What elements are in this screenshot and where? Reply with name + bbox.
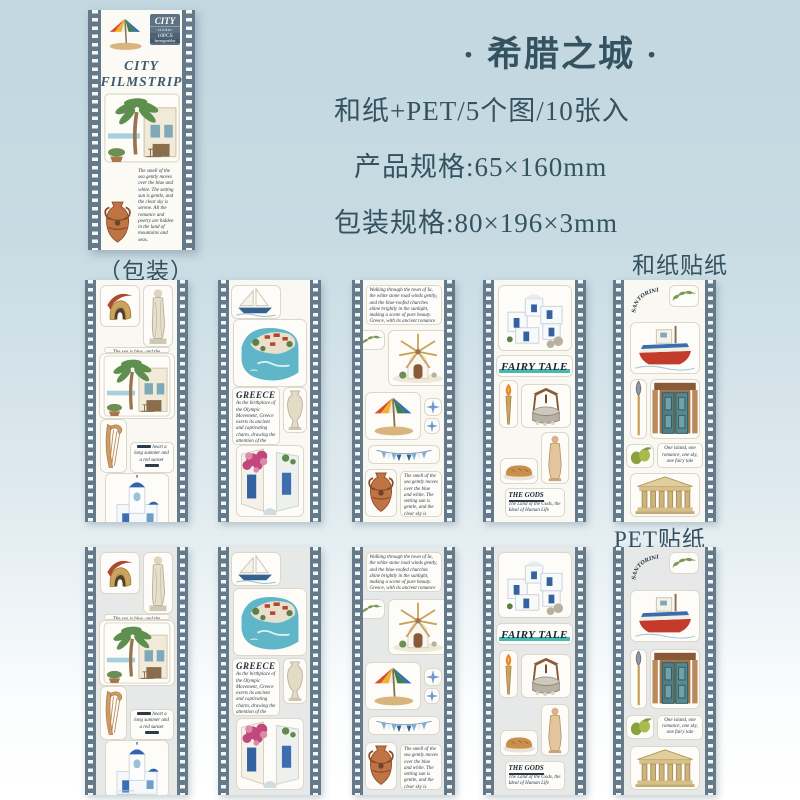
tag-title: CITY [150,16,180,27]
film-sprocket-edge [705,280,716,522]
film-sprocket-edge [705,547,716,795]
filmstrip-sticker-ancient: The sea is blue, and the dream is white.… [85,547,188,795]
side-note-sticker: heart a long summer and a red sunset [130,442,174,473]
parthenon-temple-sticker [630,473,700,517]
film-sprocket-edge [575,280,586,522]
filmstrip-sticker-santorini: SANTORINI One island, one romance, one s… [613,547,716,795]
marble-vase-sticker [283,658,307,704]
coastal-village-sticker [233,588,307,656]
santorini-arc-text: SANTORINI [630,285,666,317]
sailboat-sticker [231,285,281,319]
film-sprocket-edge [444,280,455,522]
svg-text:SANTORINI: SANTORINI [631,554,660,580]
filmstrip-sticker-greece: GREECE As the birthplace of the Olympic … [218,280,321,522]
coastal-village-sticker [233,319,307,387]
filmstrip-sticker-windmill: Walking through the town of Ia, the whit… [352,280,455,522]
amphora-vase-sticker [365,469,397,517]
old-wooden-door-sticker [650,379,700,439]
film-sprocket-edge [483,547,494,795]
film-sprocket-edge [444,547,455,795]
film-sprocket-edge [177,280,188,522]
film-sprocket-edge [85,280,96,522]
spec-product-size: 产品规格:65×160mm [330,145,792,184]
marble-vase-sticker [283,387,307,433]
greek-statue-sticker [143,285,173,347]
spear-sticker [630,379,647,439]
spartan-helmet-sticker [100,285,140,327]
ancient-well-sticker [521,654,571,698]
greece-text-sticker: GREECE As the birthplace of the Olympic … [232,387,280,445]
sailboat-sticker [231,552,281,586]
beach-umbrella-icon [103,14,147,54]
film-sprocket-edge [483,280,494,522]
blue-dome-church-sticker [105,473,169,522]
palm-house-scene-sticker [99,353,175,419]
package-photo: CITY ·sticker· 10PCS haveagoodday CITY F… [88,10,195,250]
amphora-vase-art [103,200,132,246]
side-note-sticker: heart a long summer and a red sunset [130,709,174,740]
olive-sprig-sticker [363,599,385,619]
filmstrip-sticker-greece: GREECE As the birthplace of the Olympic … [218,547,321,795]
filmstrip-sticker-santorini: SANTORINI One island, one romance, one s… [613,280,716,522]
greek-statue-sticker [143,552,173,614]
film-sprocket-edge [85,547,96,795]
white-village-sticker [498,552,572,618]
filmstrip-sticker-windmill: Walking through the town of Ia, the whit… [352,547,455,795]
package-tag: CITY ·sticker· 10PCS haveagoodday [150,14,180,45]
fairy-tale-title-sticker: FAIRY TALE [496,355,573,377]
bougainvillea-street-sticker [236,718,304,790]
paragraph-text-sticker: Walking through the town of Ia, the whit… [366,552,442,592]
santorini-arc-text: SANTORINI [630,552,666,584]
film-sprocket-edge [177,547,188,795]
parthenon-temple-sticker [630,746,700,790]
page-title: · 希腊之城 · [330,26,792,77]
amphora-vase-sticker [365,742,397,790]
windmill-sticker [388,599,444,655]
tag-brand: haveagoodday [150,39,180,43]
windmill-sticker [388,330,444,386]
olive-branch-sticker [669,285,699,307]
note-text-sticker: One island, one romance, one sky, one fa… [657,715,703,740]
sparkle-icon [424,668,442,686]
svg-text:SANTORINI: SANTORINI [631,287,660,313]
film-sprocket-edge [310,547,321,795]
olive-sprig-sticker [363,330,385,350]
spec-package-size: 包装规格:80×196×3mm [330,201,792,240]
torch-sticker [499,650,518,698]
palm-house-scene-art [103,93,181,163]
film-sprocket-edge [352,280,363,522]
old-wooden-door-sticker [650,649,700,709]
film-sprocket-edge [613,280,624,522]
tag-subtitle: ·sticker· [150,27,180,32]
robed-statue-sticker [541,704,569,756]
filmstrip-sticker-ancient: The sea is blue, and the dream is white.… [85,280,188,522]
film-sprocket-edge [88,10,101,250]
film-sprocket-edge [218,547,229,795]
spartan-helmet-sticker [100,552,140,594]
film-sprocket-edge [575,547,586,795]
sparkle-icon [424,398,442,416]
fishing-boat-sticker [630,590,700,642]
film-sprocket-edge [613,547,624,795]
torch-sticker [499,380,518,428]
bread-sticker [500,458,538,484]
bunting-banner-sticker [368,716,440,735]
spear-sticker [630,649,647,709]
the-gods-text-sticker: THE GODS The Land of the Gods, the Ideal… [505,761,565,790]
note-text-sticker: One island, one romance, one sky, one fa… [657,443,703,468]
ancient-well-sticker [521,384,571,428]
product-info: · 希腊之城 · 和纸+PET/5个图/10张入 产品规格:65×160mm 包… [330,26,792,257]
body-text-sticker: The smell of the sea gently moves over t… [400,471,442,517]
film-sprocket-edge [182,10,195,250]
beach-umbrella-sticker [365,392,421,440]
film-sprocket-edge [310,280,321,522]
harp-sticker [100,419,127,473]
film-sprocket-edge [218,280,229,522]
package-body-text: The smell of the sea gently moves over t… [135,167,180,246]
filmstrip-sticker-fairy-tale: FAIRY TALE THE GODS The Land of the Gods… [483,547,586,795]
bougainvillea-street-sticker [236,445,304,517]
beach-umbrella-sticker [365,662,421,710]
robed-statue-sticker [541,432,569,484]
blue-dome-church-sticker [105,740,169,795]
sparkle-icon [424,418,440,434]
greek-city-sticker-listing: { "header": { "title": "· 希腊之城 ·", "line… [0,0,800,800]
washi-section-label: 和纸贴纸 [632,246,728,280]
sparkle-icon [424,688,440,704]
olive-branch-sticker [669,552,699,574]
spec-material: 和纸+PET/5个图/10张入 [330,89,792,128]
palm-house-scene-sticker [99,620,175,686]
fishing-boat-sticker [630,322,700,374]
harp-sticker [100,686,127,740]
bread-sticker [500,730,538,756]
paragraph-text-sticker: Walking through the town of Ia, the whit… [366,285,442,325]
body-text-sticker: The smell of the sea gently moves over t… [400,744,442,790]
white-village-sticker [498,285,572,351]
film-sprocket-edge [352,547,363,795]
greece-text-sticker: GREECE As the birthplace of the Olympic … [232,658,280,716]
package-title: CITY FILMSTRIP [101,58,182,89]
fairy-tale-title-sticker: FAIRY TALE [496,623,573,645]
filmstrip-sticker-fairy-tale: FAIRY TALE THE GODS The Land of the Gods… [483,280,586,522]
olives-sticker [626,444,654,468]
bunting-banner-sticker [368,445,440,464]
the-gods-text-sticker: THE GODS The Land of the Gods, the Ideal… [505,488,565,517]
olives-sticker [626,715,654,739]
